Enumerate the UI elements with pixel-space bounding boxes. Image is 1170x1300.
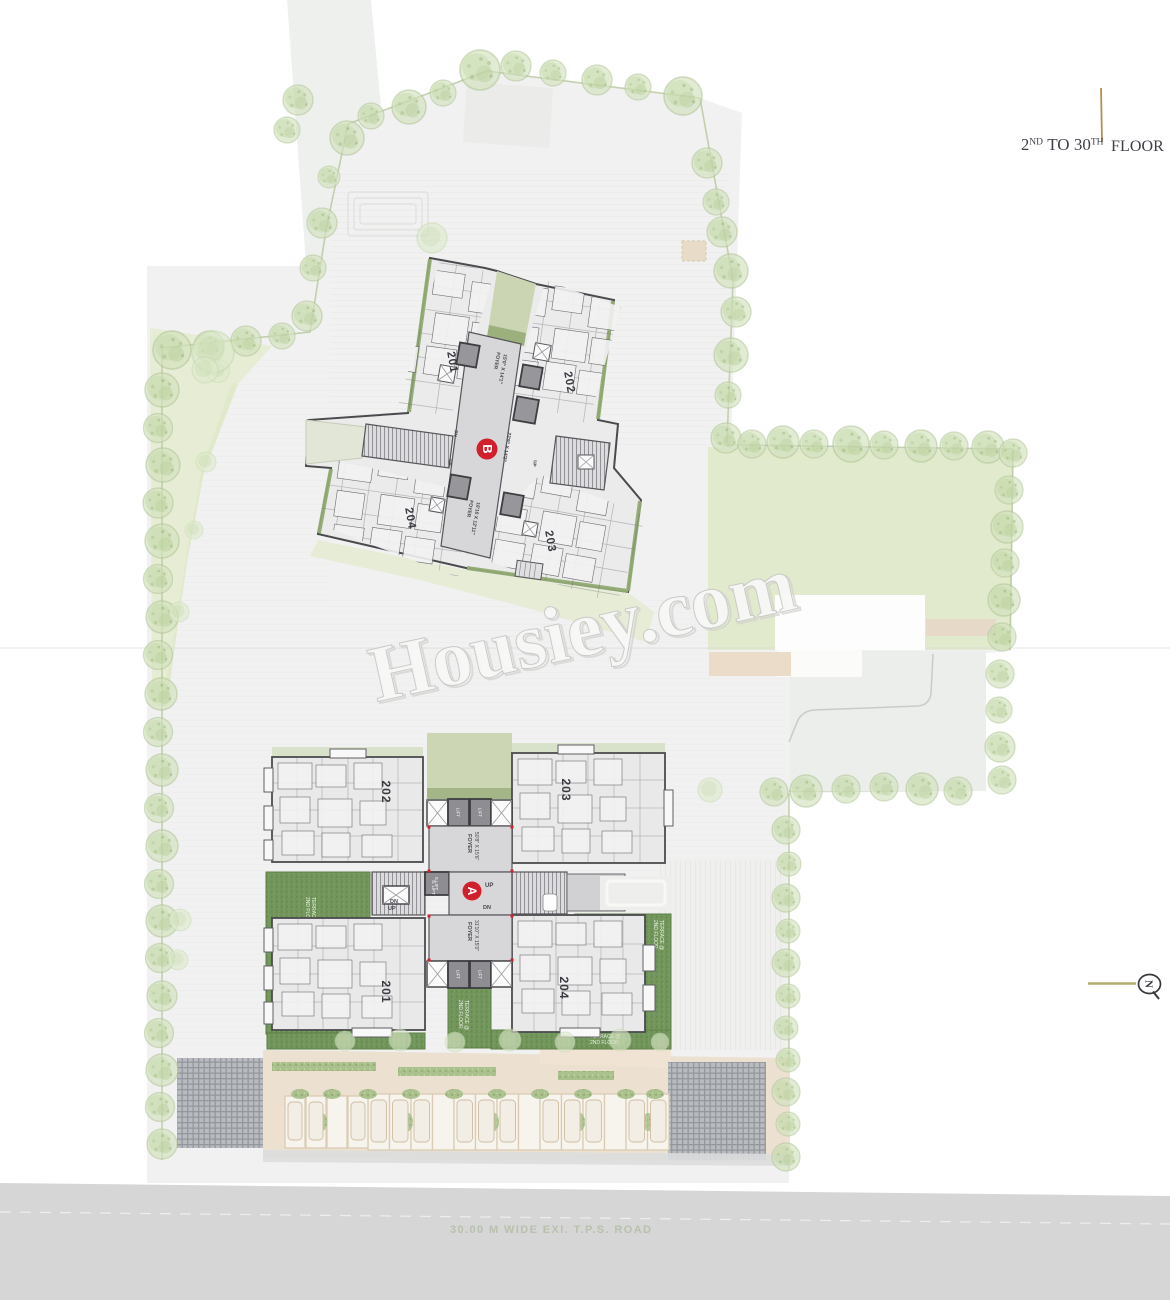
svg-text:FOYER: FOYER	[466, 922, 472, 941]
svg-text:B: B	[480, 444, 495, 453]
svg-text:204: 204	[557, 976, 571, 999]
svg-text:N: N	[1143, 980, 1155, 988]
svg-text:LIFT: LIFT	[456, 808, 461, 818]
svg-text:2ND TO 30TH: 2ND TO 30TH	[1021, 135, 1104, 154]
svg-text:A: A	[465, 887, 479, 896]
svg-text:201: 201	[379, 980, 393, 1003]
svg-text:DN: DN	[483, 905, 491, 911]
svg-text:UP: UP	[485, 883, 493, 889]
svg-text:FOYER: FOYER	[466, 834, 472, 853]
svg-text:LIFT: LIFT	[456, 970, 461, 980]
svg-text:DN: DN	[390, 899, 398, 905]
svg-text:UP: UP	[388, 906, 396, 912]
svg-text:50'8" X 15'6": 50'8" X 15'6"	[473, 832, 479, 860]
svg-text:203: 203	[559, 778, 573, 801]
svg-text:S. LIFT: S. LIFT	[431, 880, 436, 895]
svg-text:30.00 M WIDE EXI. T.P.S.: 30.00 M WIDE EXI. T.P.S. ROAD	[450, 1224, 652, 1236]
svg-text:LIFT: LIFT	[478, 970, 483, 980]
svg-text:2ND FLOOR: 2ND FLOOR	[457, 1000, 463, 1029]
svg-text:202: 202	[379, 780, 393, 803]
svg-text:31'10" X 15'0": 31'10" X 15'0"	[473, 920, 479, 951]
svg-text:FLOOR: FLOOR	[1111, 138, 1164, 155]
svg-text:LIFT: LIFT	[478, 808, 483, 818]
